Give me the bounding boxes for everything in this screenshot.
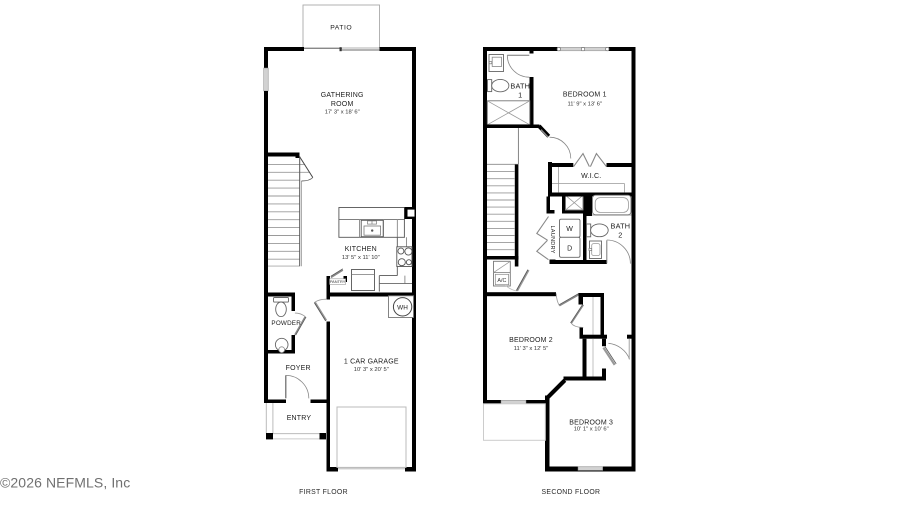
svg-text:PATIO: PATIO: [330, 25, 352, 32]
svg-text:BATH: BATH: [510, 81, 530, 90]
svg-text:KITCHEN: KITCHEN: [345, 246, 377, 253]
svg-text:POWDER: POWDER: [271, 320, 301, 327]
svg-text:BEDROOM 2: BEDROOM 2: [509, 337, 553, 344]
svg-text:10' 1" x 10' 6": 10' 1" x 10' 6": [574, 427, 609, 433]
svg-text:1 CAR GARAGE: 1 CAR GARAGE: [344, 359, 399, 366]
svg-text:PANTRY: PANTRY: [330, 279, 346, 284]
svg-text:ENTRY: ENTRY: [287, 415, 312, 422]
svg-text:ROOM: ROOM: [331, 101, 354, 108]
svg-text:13' 5" x 11' 10": 13' 5" x 11' 10": [342, 255, 380, 261]
svg-text:FOYER: FOYER: [286, 365, 311, 372]
svg-text:W: W: [566, 226, 573, 233]
svg-text:BEDROOM 1: BEDROOM 1: [563, 92, 607, 99]
svg-text:17' 3" x 18' 6": 17' 3" x 18' 6": [325, 110, 360, 116]
svg-text:A/C: A/C: [497, 278, 506, 284]
svg-text:BATH: BATH: [611, 221, 631, 230]
svg-text:BEDROOM 3: BEDROOM 3: [569, 420, 613, 427]
svg-text:2: 2: [618, 230, 622, 239]
svg-text:1: 1: [518, 90, 522, 99]
svg-text:10' 3" x 20' 5": 10' 3" x 20' 5": [354, 367, 389, 373]
svg-text:LAUNDRY: LAUNDRY: [549, 225, 555, 253]
svg-text:11' 3" x 12' 5": 11' 3" x 12' 5": [514, 346, 549, 352]
svg-text:W.I.C.: W.I.C.: [581, 173, 601, 180]
svg-text:SECOND FLOOR: SECOND FLOOR: [542, 489, 601, 496]
svg-text:WH: WH: [397, 304, 408, 311]
svg-text:FIRST FLOOR: FIRST FLOOR: [299, 489, 348, 496]
svg-text:©2026 NEFMLS, Inc: ©2026 NEFMLS, Inc: [0, 475, 130, 491]
svg-text:11' 9" x 13' 6": 11' 9" x 13' 6": [568, 102, 603, 108]
svg-text:GATHERING: GATHERING: [321, 92, 364, 99]
svg-text:D: D: [567, 246, 572, 253]
